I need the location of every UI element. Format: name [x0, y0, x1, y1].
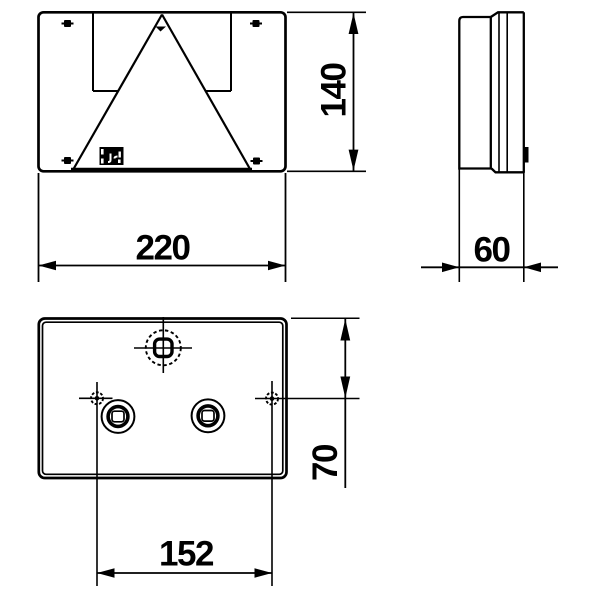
svg-text:220: 220 — [136, 229, 191, 268]
svg-text:60: 60 — [474, 230, 511, 269]
svg-text:70: 70 — [306, 444, 345, 481]
svg-text:140: 140 — [315, 63, 354, 118]
svg-text:152: 152 — [159, 535, 214, 574]
